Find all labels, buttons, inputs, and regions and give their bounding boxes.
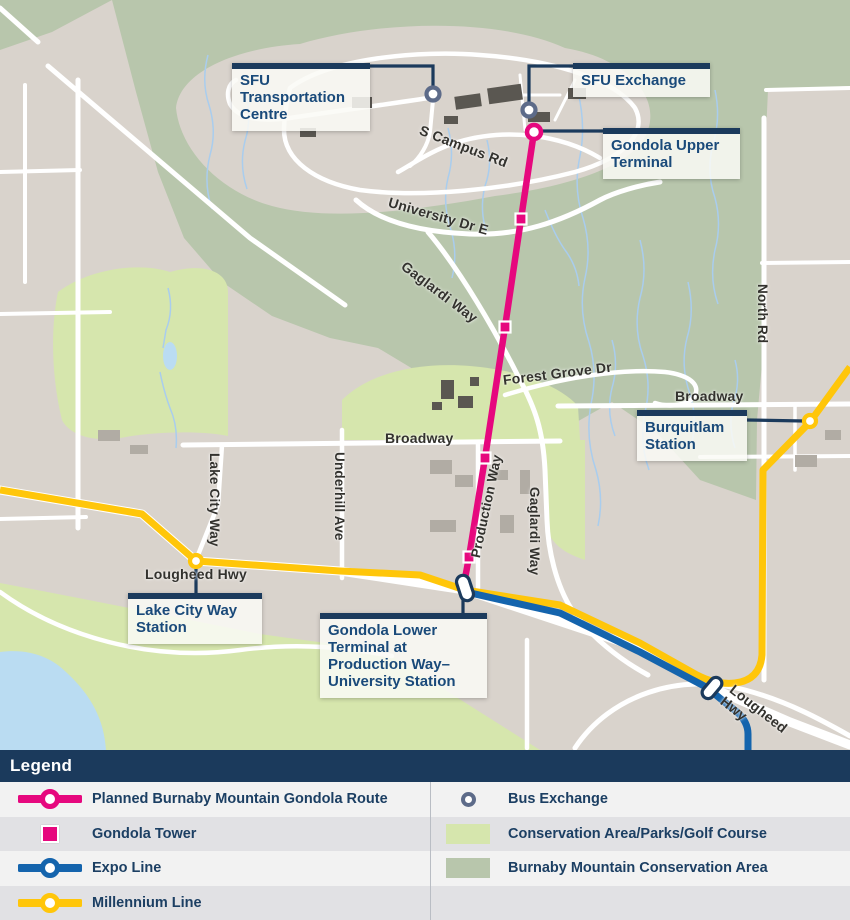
- legend-row: Millennium Line: [0, 886, 850, 920]
- legend-item-empty: [430, 886, 850, 920]
- legend-row: Planned Burnaby Mountain Gondola Route B…: [0, 782, 850, 817]
- callout-sfu-transportation-centre: SFU Transportation Centre: [232, 63, 370, 131]
- road-label-lake-city-way: Lake City Way: [207, 453, 222, 547]
- gondola-route-line-icon: [18, 795, 82, 803]
- legend-body: Planned Burnaby Mountain Gondola Route B…: [0, 782, 850, 920]
- legend-header: Legend: [0, 750, 850, 782]
- road-label-gaglardi-way-lower: Gaglardi Way: [527, 487, 542, 575]
- legend-label: Bus Exchange: [508, 791, 608, 807]
- pond: [163, 342, 177, 370]
- road-label-broadway-east: Broadway: [675, 388, 744, 404]
- conservation-swatch-icon: [446, 858, 490, 878]
- legend: Legend Planned Burnaby Mountain Gondola …: [0, 750, 850, 920]
- road-label-broadway-west: Broadway: [385, 430, 454, 446]
- callout-label: Gondola Lower Terminal at Production Way…: [320, 619, 487, 698]
- legend-item-conservation: Burnaby Mountain Conservation Area: [430, 851, 850, 886]
- legend-label: Conservation Area/Parks/Golf Course: [508, 826, 767, 842]
- callout-gondola-lower-terminal: Gondola Lower Terminal at Production Way…: [320, 613, 487, 698]
- road-label-underhill-ave: Underhill Ave: [332, 452, 347, 541]
- legend-label: Burnaby Mountain Conservation Area: [508, 860, 768, 876]
- burquitlam-station-marker: [804, 415, 816, 427]
- sfu-transportation-centre-bus-exchange-marker: [427, 88, 440, 101]
- legend-item-gondola-route: Planned Burnaby Mountain Gondola Route: [0, 782, 430, 817]
- callout-label: Burquitlam Station: [637, 416, 747, 461]
- gondola-tower-icon: [41, 825, 59, 843]
- parks-swatch-icon: [446, 824, 490, 844]
- callout-label: SFU Transportation Centre: [232, 69, 370, 131]
- callout-lake-city-way-station: Lake City Way Station: [128, 593, 262, 644]
- legend-item-expo-line: Expo Line: [0, 851, 430, 886]
- callout-sfu-exchange: SFU Exchange: [573, 63, 710, 97]
- road-label-north-rd: North Rd: [755, 284, 770, 343]
- gondola-upper-terminal-marker: [527, 125, 541, 139]
- legend-item-millennium-line: Millennium Line: [0, 886, 430, 920]
- map-area: S Campus Rd University Dr E Gaglardi Way…: [0, 0, 850, 750]
- legend-label: Expo Line: [92, 860, 161, 876]
- road-label-lougheed-hwy-west: Lougheed Hwy: [145, 566, 247, 582]
- legend-label: Planned Burnaby Mountain Gondola Route: [92, 791, 388, 807]
- gondola-tower-marker: [500, 322, 511, 333]
- callout-burquitlam-station: Burquitlam Station: [637, 410, 747, 461]
- legend-item-gondola-tower: Gondola Tower: [0, 817, 430, 852]
- callout-label: Lake City Way Station: [128, 599, 262, 644]
- sfu-exchange-bus-marker: [523, 104, 536, 117]
- gondola-map-infographic: S Campus Rd University Dr E Gaglardi Way…: [0, 0, 850, 920]
- millennium-line-icon: [18, 899, 82, 907]
- legend-item-bus-exchange: Bus Exchange: [430, 782, 850, 817]
- legend-row: Gondola Tower Conservation Area/Parks/Go…: [0, 817, 850, 852]
- callout-label: Gondola Upper Terminal: [603, 134, 740, 179]
- legend-row: Expo Line Burnaby Mountain Conservation …: [0, 851, 850, 886]
- bus-exchange-icon: [461, 792, 476, 807]
- legend-title: Legend: [10, 756, 72, 776]
- legend-item-parks: Conservation Area/Parks/Golf Course: [430, 817, 850, 852]
- legend-label: Millennium Line: [92, 895, 202, 911]
- callout-gondola-upper-terminal: Gondola Upper Terminal: [603, 128, 740, 179]
- legend-label: Gondola Tower: [92, 826, 196, 842]
- callout-label: SFU Exchange: [573, 69, 710, 97]
- expo-line-icon: [18, 864, 82, 872]
- gondola-tower-marker: [516, 214, 527, 225]
